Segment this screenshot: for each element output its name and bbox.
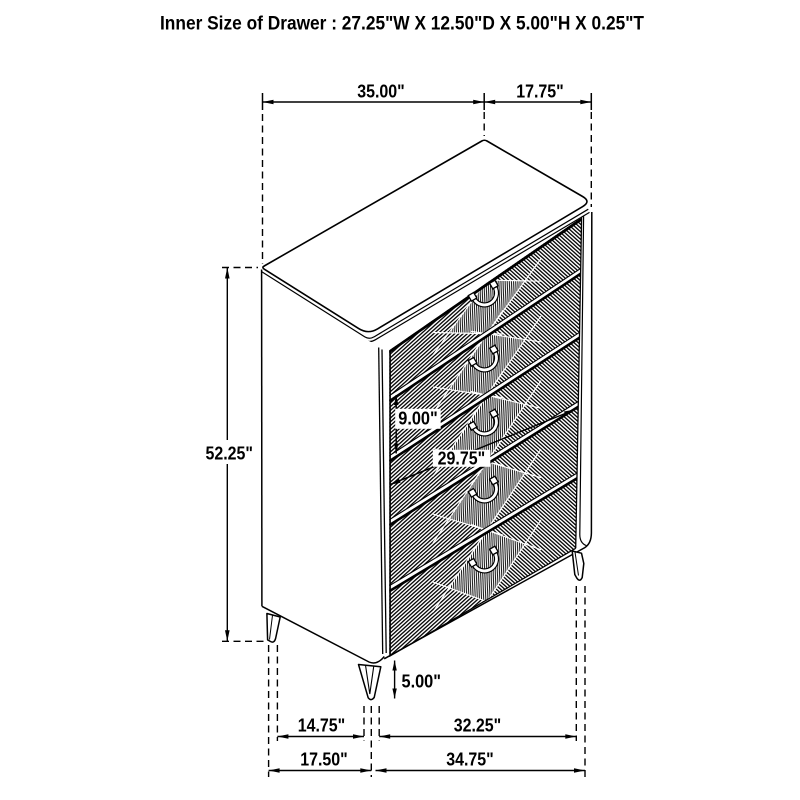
svg-text:34.75": 34.75" xyxy=(446,750,494,770)
svg-text:17.75": 17.75" xyxy=(516,82,564,102)
svg-text:17.50": 17.50" xyxy=(300,750,348,770)
svg-text:52.25": 52.25" xyxy=(205,443,253,463)
svg-text:32.25": 32.25" xyxy=(454,716,502,736)
svg-text:9.00": 9.00" xyxy=(398,408,438,428)
svg-text:14.75": 14.75" xyxy=(298,716,346,736)
svg-text:35.00": 35.00" xyxy=(357,82,405,102)
svg-text:Inner Size of Drawer : 27.25"W: Inner Size of Drawer : 27.25"W X 12.50"D… xyxy=(160,14,644,35)
svg-text:29.75": 29.75" xyxy=(438,448,486,468)
svg-text:5.00": 5.00" xyxy=(402,672,442,692)
